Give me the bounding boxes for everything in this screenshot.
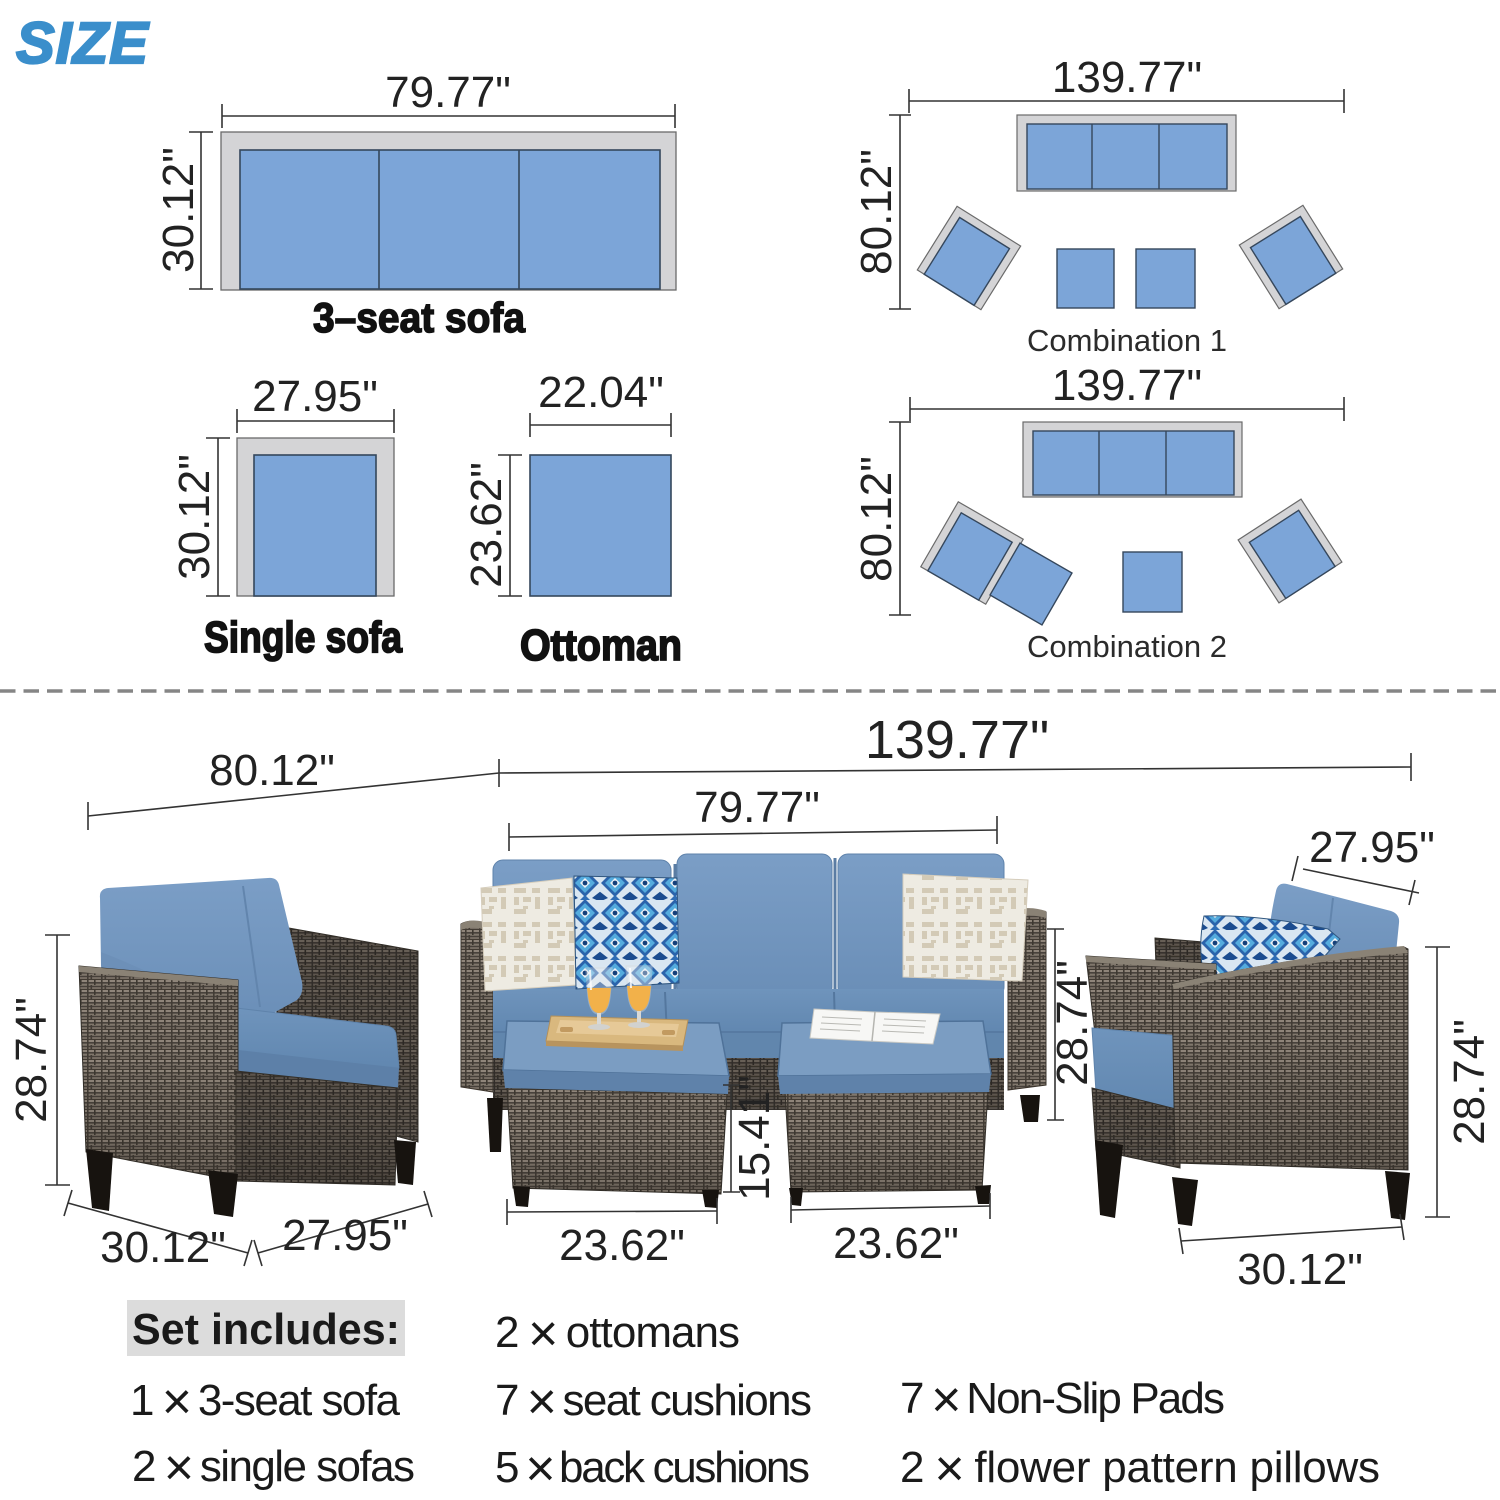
svg-text:Ottoman: Ottoman bbox=[520, 621, 682, 670]
svg-text:7 × ​seat cushions: 7 × ​seat cushions bbox=[495, 1373, 812, 1431]
svg-text:3–seat sofa: 3–seat sofa bbox=[313, 294, 526, 341]
svg-text:Combination 2: Combination 2 bbox=[1027, 629, 1227, 664]
svg-text:139.77": 139.77" bbox=[1052, 361, 1202, 410]
svg-text:30.12": 30.12" bbox=[154, 147, 203, 273]
svg-text:5 × ​back cushions: 5 × ​back cushions bbox=[495, 1440, 810, 1498]
svg-text:80.12": 80.12" bbox=[852, 456, 901, 582]
svg-text:30.12": 30.12" bbox=[170, 454, 219, 580]
svg-text:27.95": 27.95" bbox=[252, 372, 378, 421]
svg-text:SIZE: SIZE bbox=[16, 11, 150, 76]
svg-text:139.77": 139.77" bbox=[865, 710, 1049, 770]
svg-text:23.62": 23.62" bbox=[559, 1221, 685, 1270]
svg-text:30.12": 30.12" bbox=[100, 1223, 226, 1272]
svg-text:23.62": 23.62" bbox=[462, 462, 511, 588]
svg-text:2 × ​ottomans: 2 × ​ottomans bbox=[495, 1305, 740, 1363]
svg-text:7 × ​Non-Slip Pads: 7 × ​Non-Slip Pads bbox=[900, 1371, 1225, 1429]
svg-text:28.74": 28.74" bbox=[1048, 960, 1097, 1086]
svg-text:28.74": 28.74" bbox=[7, 997, 56, 1123]
svg-text:30.12": 30.12" bbox=[1237, 1245, 1363, 1294]
svg-text:1 × ​3-seat sofa: 1 × ​3-seat sofa bbox=[130, 1373, 401, 1431]
svg-text:15.41": 15.41" bbox=[730, 1075, 779, 1201]
svg-text:2 × ​flower pattern pillows: 2 × ​flower pattern pillows bbox=[900, 1440, 1380, 1498]
svg-text:27.95": 27.95" bbox=[1309, 823, 1435, 872]
svg-text:139.77": 139.77" bbox=[1052, 53, 1202, 102]
svg-text:79.77": 79.77" bbox=[385, 68, 511, 117]
svg-text:28.74": 28.74" bbox=[1445, 1019, 1494, 1145]
svg-text:22.04": 22.04" bbox=[538, 368, 664, 417]
svg-text:Set includes:: Set includes: bbox=[132, 1305, 400, 1354]
svg-text:Combination 1: Combination 1 bbox=[1027, 323, 1227, 358]
svg-text:80.12": 80.12" bbox=[209, 746, 335, 795]
svg-text:79.77": 79.77" bbox=[694, 783, 820, 832]
svg-text:Single sofa: Single sofa bbox=[204, 613, 402, 662]
svg-text:2 × ​single sofas: 2 × ​single sofas bbox=[132, 1439, 415, 1497]
svg-text:27.95": 27.95" bbox=[282, 1211, 408, 1260]
svg-text:23.62": 23.62" bbox=[833, 1219, 959, 1268]
svg-text:80.12": 80.12" bbox=[852, 149, 901, 275]
